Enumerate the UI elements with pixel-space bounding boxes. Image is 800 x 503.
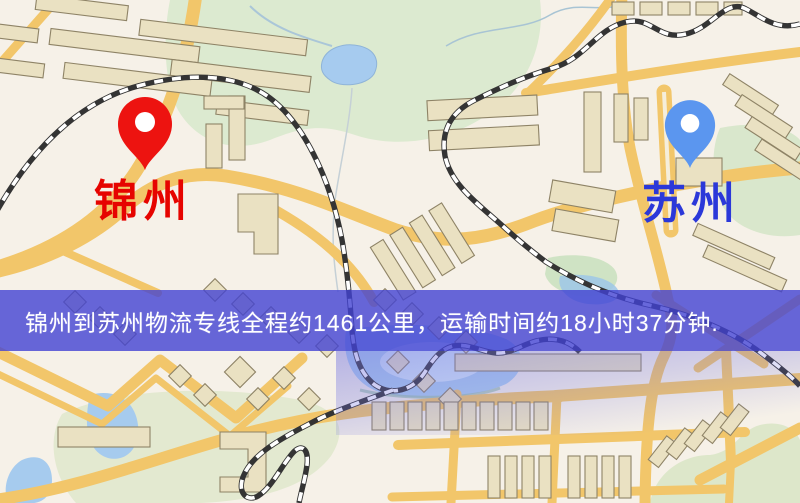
map-background	[0, 0, 800, 503]
route-info-banner: 锦州到苏州物流专线全程约1461公里，运输时间约18小时37分钟.	[0, 290, 800, 351]
origin-city-label: 锦州	[94, 180, 192, 224]
destination-city-label: 苏州	[642, 182, 740, 226]
route-info-text: 锦州到苏州物流专线全程约1461公里，运输时间约18小时37分钟.	[25, 304, 719, 338]
route-map: 锦州到苏州物流专线全程约1461公里，运输时间约18小时37分钟. 锦州 苏州	[0, 0, 800, 503]
